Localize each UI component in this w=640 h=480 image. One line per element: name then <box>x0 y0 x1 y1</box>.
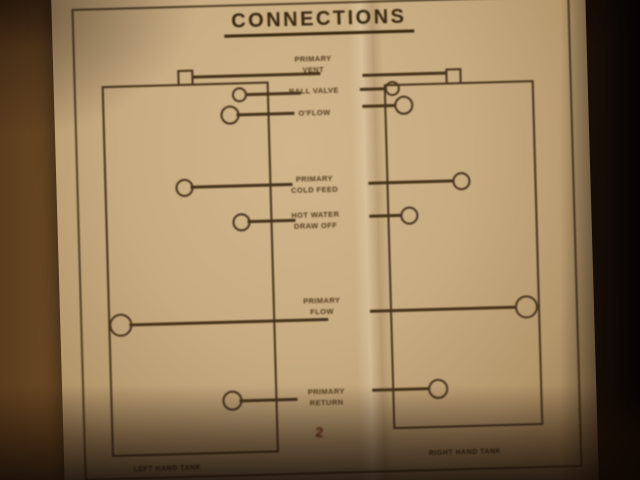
label-primary-cold-feed: PRIMARY COLD FEED <box>258 172 371 198</box>
label-primary-vent: PRIMARY VENT <box>257 52 370 78</box>
printed-diagram: CONNECTIONS <box>51 0 599 480</box>
diagram-title: CONNECTIONS <box>224 5 415 37</box>
label-primary-flow: PRIMARY FLOW <box>266 294 379 320</box>
right-tank-outline <box>384 80 544 429</box>
label-hot-water-draw-off: HOT WATER DRAW OFF <box>259 208 372 234</box>
photo-of-connections-label: CONNECTIONS <box>0 0 640 480</box>
right-vent-boss <box>445 68 461 84</box>
label-primary-return: PRIMARY RETURN <box>270 384 383 410</box>
handwritten-mark: 2 <box>315 424 330 443</box>
connections-label-paper: CONNECTIONS <box>51 0 599 480</box>
left-vent-boss <box>177 70 193 86</box>
